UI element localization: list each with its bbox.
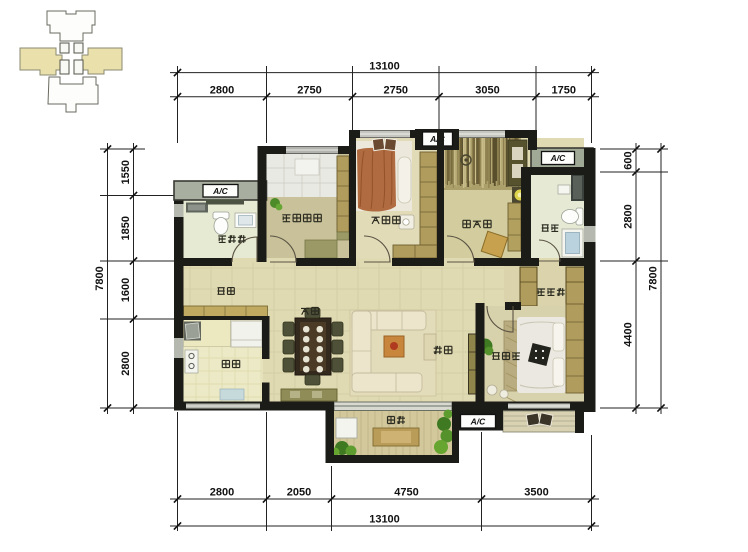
svg-text:3500: 3500 [524, 487, 548, 499]
svg-text:1850: 1850 [120, 216, 132, 240]
svg-text:2750: 2750 [297, 85, 321, 97]
svg-text:13100: 13100 [369, 514, 400, 526]
svg-text:2750: 2750 [384, 85, 408, 97]
svg-text:A/C: A/C [470, 417, 487, 427]
svg-text:4400: 4400 [623, 322, 635, 346]
svg-text:2800: 2800 [120, 351, 132, 375]
svg-text:A/C: A/C [550, 153, 567, 163]
svg-text:1600: 1600 [120, 278, 132, 302]
svg-text:2800: 2800 [210, 487, 234, 499]
svg-text:1550: 1550 [120, 160, 132, 184]
svg-text:1750: 1750 [552, 85, 576, 97]
svg-text:A/C: A/C [212, 186, 229, 196]
svg-text:2050: 2050 [287, 487, 311, 499]
svg-text:4750: 4750 [394, 487, 418, 499]
svg-text:7800: 7800 [648, 266, 660, 290]
svg-text:7800: 7800 [94, 266, 106, 290]
svg-text:2800: 2800 [623, 204, 635, 228]
svg-text:13100: 13100 [369, 61, 400, 73]
svg-text:2800: 2800 [210, 85, 234, 97]
svg-text:3050: 3050 [475, 85, 499, 97]
svg-text:600: 600 [623, 151, 635, 169]
